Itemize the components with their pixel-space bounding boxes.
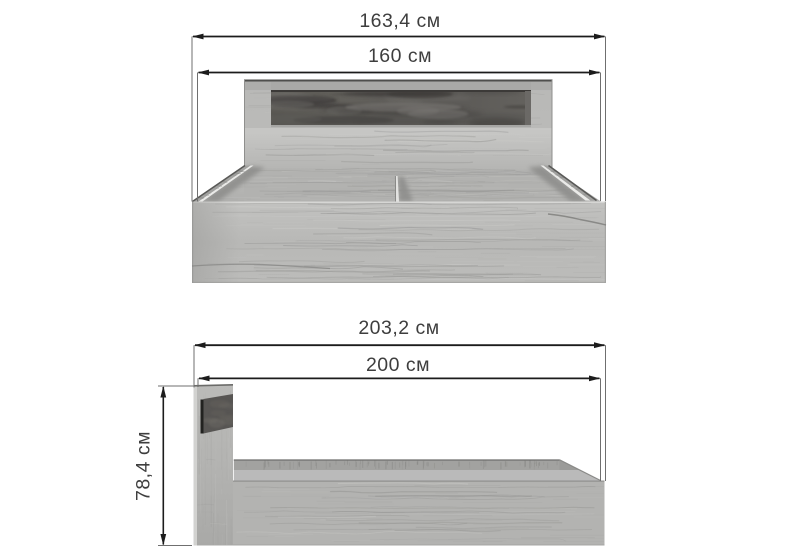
svg-text:203,2 см: 203,2 см [358, 317, 439, 339]
svg-text:200 см: 200 см [366, 354, 430, 376]
svg-text:163,4 см: 163,4 см [359, 10, 440, 32]
svg-text:78,4 см: 78,4 см [133, 431, 155, 501]
svg-text:160 см: 160 см [368, 45, 432, 67]
